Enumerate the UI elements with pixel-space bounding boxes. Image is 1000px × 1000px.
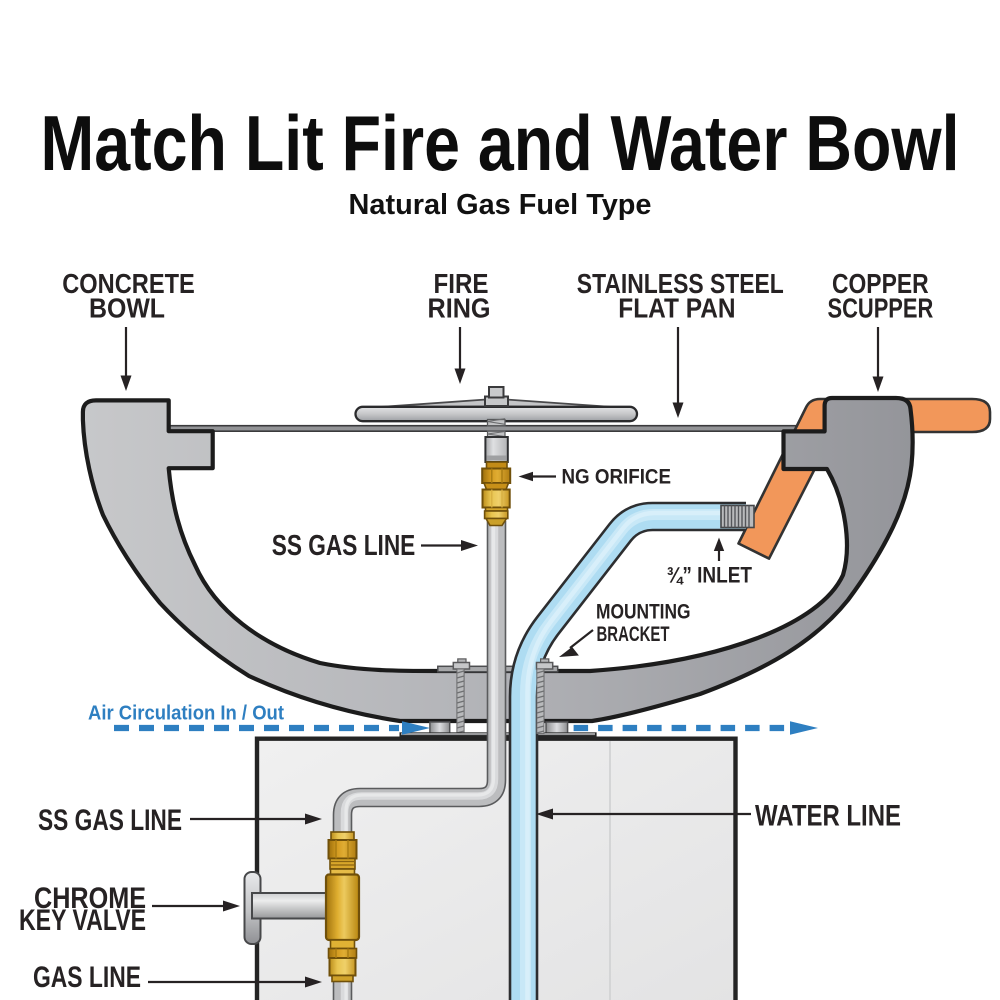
svg-text:SS GAS LINE: SS GAS LINE [38, 804, 182, 837]
svg-text:Natural Gas Fuel Type: Natural Gas Fuel Type [349, 189, 652, 221]
svg-text:RING: RING [428, 293, 491, 324]
svg-text:NG ORIFICE: NG ORIFICE [562, 466, 672, 489]
svg-text:KEY VALVE: KEY VALVE [19, 904, 146, 937]
svg-text:FLAT PAN: FLAT PAN [618, 293, 735, 324]
svg-text:BOWL: BOWL [89, 293, 165, 324]
svg-text:Match Lit Fire and Water Bowl: Match Lit Fire and Water Bowl [41, 99, 960, 187]
svg-text:¾” INLET: ¾” INLET [667, 563, 753, 588]
svg-text:BRACKET: BRACKET [597, 623, 670, 646]
svg-text:MOUNTING: MOUNTING [596, 601, 691, 624]
svg-text:Air Circulation In / Out: Air Circulation In / Out [88, 703, 284, 725]
svg-text:SS GAS LINE: SS GAS LINE [272, 530, 416, 562]
svg-text:SCUPPER: SCUPPER [828, 293, 934, 324]
svg-text:GAS LINE: GAS LINE [33, 961, 141, 994]
svg-text:WATER LINE: WATER LINE [755, 800, 901, 833]
